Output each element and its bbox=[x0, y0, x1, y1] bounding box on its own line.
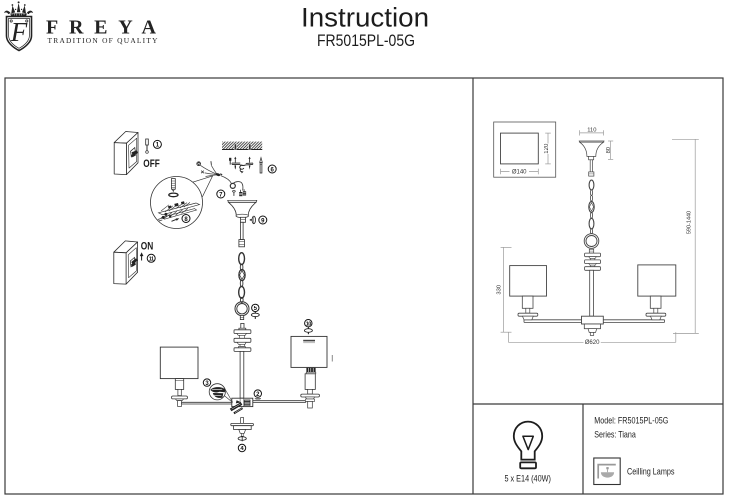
svg-text:330: 330 bbox=[496, 285, 502, 295]
svg-text:F: F bbox=[10, 17, 28, 47]
svg-text:11: 11 bbox=[149, 256, 154, 262]
svg-text:120: 120 bbox=[544, 143, 550, 154]
svg-text:5 x E14 (40W): 5 x E14 (40W) bbox=[504, 474, 551, 485]
svg-text:110: 110 bbox=[587, 127, 596, 133]
svg-text:OFF: OFF bbox=[143, 158, 160, 170]
svg-text:590-1440: 590-1440 bbox=[686, 211, 692, 234]
svg-text:Series: Tiana: Series: Tiana bbox=[594, 430, 636, 441]
svg-text:Ceilling Lamps: Ceilling Lamps bbox=[627, 467, 675, 478]
svg-text:Ø620: Ø620 bbox=[585, 340, 600, 346]
svg-text:80: 80 bbox=[606, 147, 612, 153]
svg-text:Instruction: Instruction bbox=[301, 3, 429, 33]
svg-text:FR5015PL-05G: FR5015PL-05G bbox=[317, 31, 415, 50]
svg-text:10: 10 bbox=[306, 321, 312, 327]
svg-text:Model: FR5015PL-05G: Model: FR5015PL-05G bbox=[594, 416, 668, 427]
svg-text:Ø140: Ø140 bbox=[512, 170, 527, 176]
svg-text:ON: ON bbox=[141, 240, 154, 252]
